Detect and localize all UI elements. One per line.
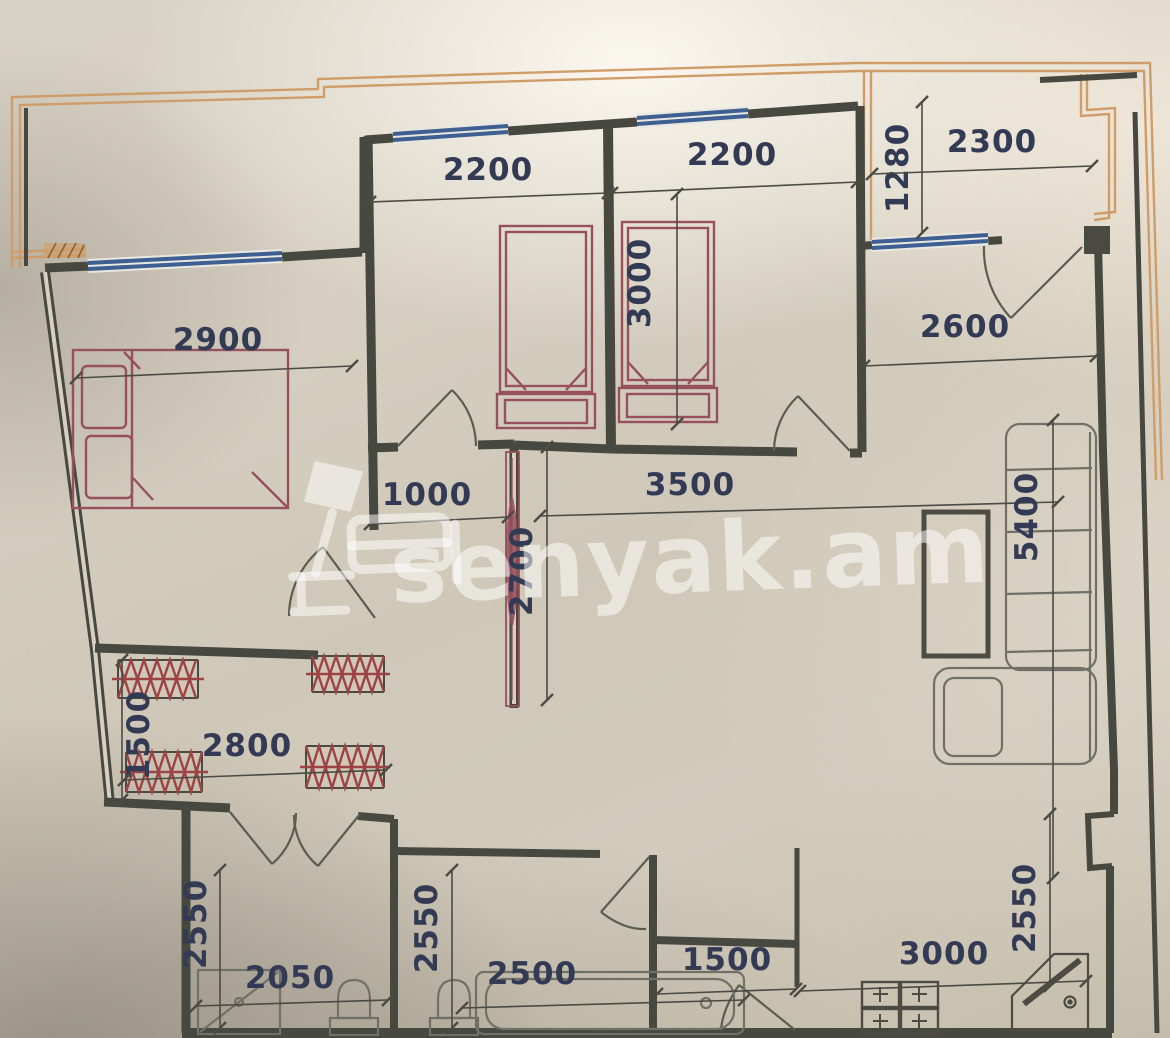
dimension-label: 2900: [173, 322, 263, 358]
dimension-label: 5400: [1009, 472, 1045, 562]
dimension-line: [76, 366, 352, 378]
dimension-label: 2600: [920, 309, 1010, 345]
toilet-1: [330, 980, 378, 1035]
dimension-line: [370, 193, 608, 202]
dimension-label: 1500: [682, 942, 772, 978]
dimension-label: 2500: [487, 956, 577, 992]
wardrobe-hatch-2: [306, 656, 390, 692]
dimension-label: 3000: [899, 936, 989, 972]
watermark-text: senyak.am: [388, 493, 993, 626]
dimension-line: [196, 1000, 388, 1006]
dimension-label: 1280: [880, 123, 916, 213]
dimension-label: 1500: [121, 690, 157, 780]
dimension-label: 2550: [1007, 863, 1043, 953]
windows: [88, 110, 988, 269]
floorplan-photo: 2200220012802300300029002600100035002700…: [0, 0, 1170, 1038]
dimension-line: [657, 989, 796, 994]
dimension-line: [864, 356, 1096, 366]
stove: [862, 982, 938, 1034]
entry-column: [1084, 226, 1110, 254]
dimension-label: 1000: [382, 477, 472, 513]
dimension-label: 2550: [409, 883, 445, 973]
door-kidsroom1: [398, 390, 476, 446]
door-bathroom1-right: [294, 814, 360, 866]
watermark: senyak.am: [289, 438, 993, 629]
window-kidsroom1: [393, 126, 508, 140]
wardrobe-hatch-4: [300, 746, 390, 788]
floor-plan: 2200220012802300300029002600100035002700…: [0, 0, 1170, 1038]
door-entry: [984, 246, 1082, 318]
red-furniture: [73, 222, 717, 706]
door-bathroom2: [601, 856, 650, 929]
dimension-label: 3000: [622, 238, 658, 328]
balcony-sill-hatch: [44, 243, 86, 258]
dimension-label: 2200: [443, 152, 533, 188]
door-bathroom1-left: [230, 812, 296, 864]
window-entry-balcony: [872, 235, 988, 248]
dimension-label: 2300: [947, 124, 1037, 160]
window-bedroom1: [88, 253, 282, 269]
window-kidsroom2: [637, 110, 748, 124]
bed-single-1: [497, 226, 595, 428]
dimension-label: 2550: [178, 879, 214, 969]
dimension-line: [612, 182, 857, 193]
dimension-label: 3500: [645, 467, 735, 503]
dimension-label: 2050: [245, 960, 335, 996]
dimension-label: 2800: [202, 728, 292, 764]
door-kidsroom2: [774, 396, 850, 451]
dimension-label: 2200: [687, 137, 777, 173]
